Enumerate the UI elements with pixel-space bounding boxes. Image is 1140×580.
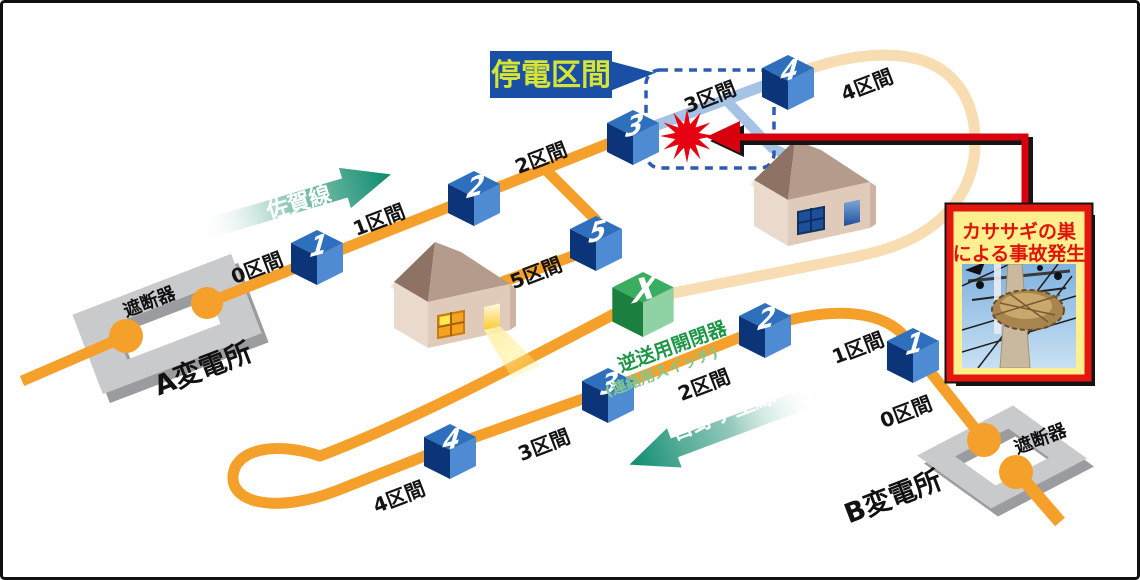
breaker-b-terminal-1 (967, 423, 1001, 457)
accident-note-box: カササギの巣 による事故発生 (946, 204, 1095, 386)
lit-door (484, 304, 500, 331)
accident-text-line1: カササギの巣 (962, 220, 1077, 243)
breaker-a-terminal-2 (191, 287, 223, 319)
dark-door (844, 200, 860, 227)
breaker-a-terminal-1 (109, 319, 143, 353)
outage-diagram: 1 2 3 4 5 1 2 3 4 X 佐賀線 吉野ヶ里線 0区間 1区間 2区… (0, 0, 1140, 580)
diagram-canvas: 1 2 3 4 5 1 2 3 4 X 佐賀線 吉野ヶ里線 0区間 1区間 2区… (0, 0, 1140, 580)
accident-text-line2: による事故発生 (953, 242, 1085, 265)
callout-label: 停電区間 (491, 58, 611, 93)
breaker-b-terminal-2 (999, 455, 1033, 489)
magpie-nest-photo (962, 262, 1076, 368)
